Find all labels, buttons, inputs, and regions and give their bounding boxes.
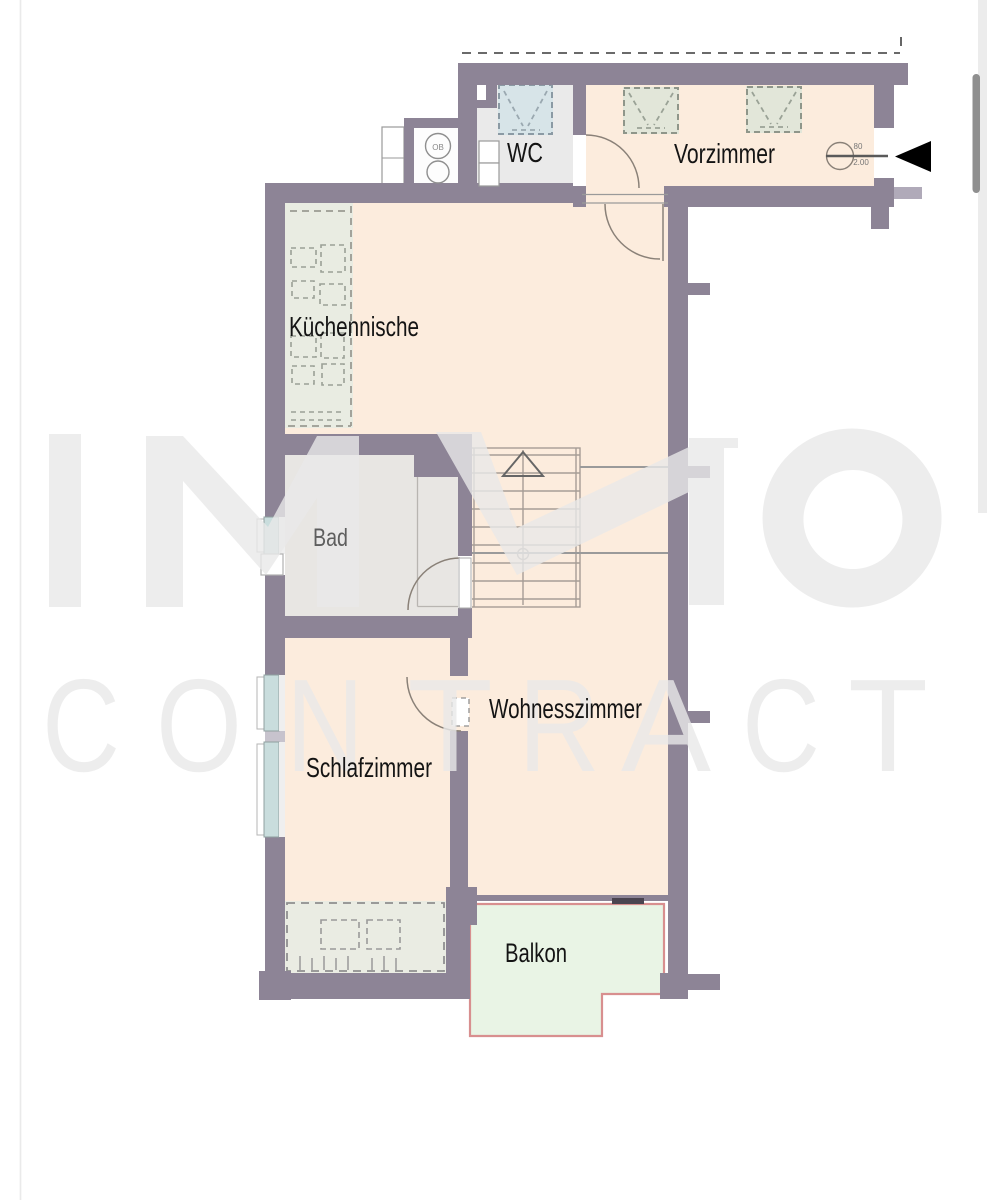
svg-text:2.00: 2.00 xyxy=(853,158,869,167)
svg-text:80: 80 xyxy=(854,142,863,151)
svg-text:R: R xyxy=(518,652,600,799)
svg-text:Vorzimmer: Vorzimmer xyxy=(674,138,775,169)
svg-text:C: C xyxy=(42,652,120,799)
svg-text:WC: WC xyxy=(507,137,543,168)
svg-text:A: A xyxy=(621,652,711,799)
svg-text:Balkon: Balkon xyxy=(505,938,567,968)
svg-text:T: T xyxy=(848,652,928,799)
svg-text:OB: OB xyxy=(432,143,444,152)
svg-text:Schlafzimmer: Schlafzimmer xyxy=(306,752,432,783)
svg-text:C: C xyxy=(742,652,820,799)
svg-text:Küchennische: Küchennische xyxy=(289,311,419,342)
svg-text:Wohnesszimmer: Wohnesszimmer xyxy=(489,693,642,724)
svg-text:Bad: Bad xyxy=(313,524,348,552)
svg-text:O: O xyxy=(156,652,242,799)
